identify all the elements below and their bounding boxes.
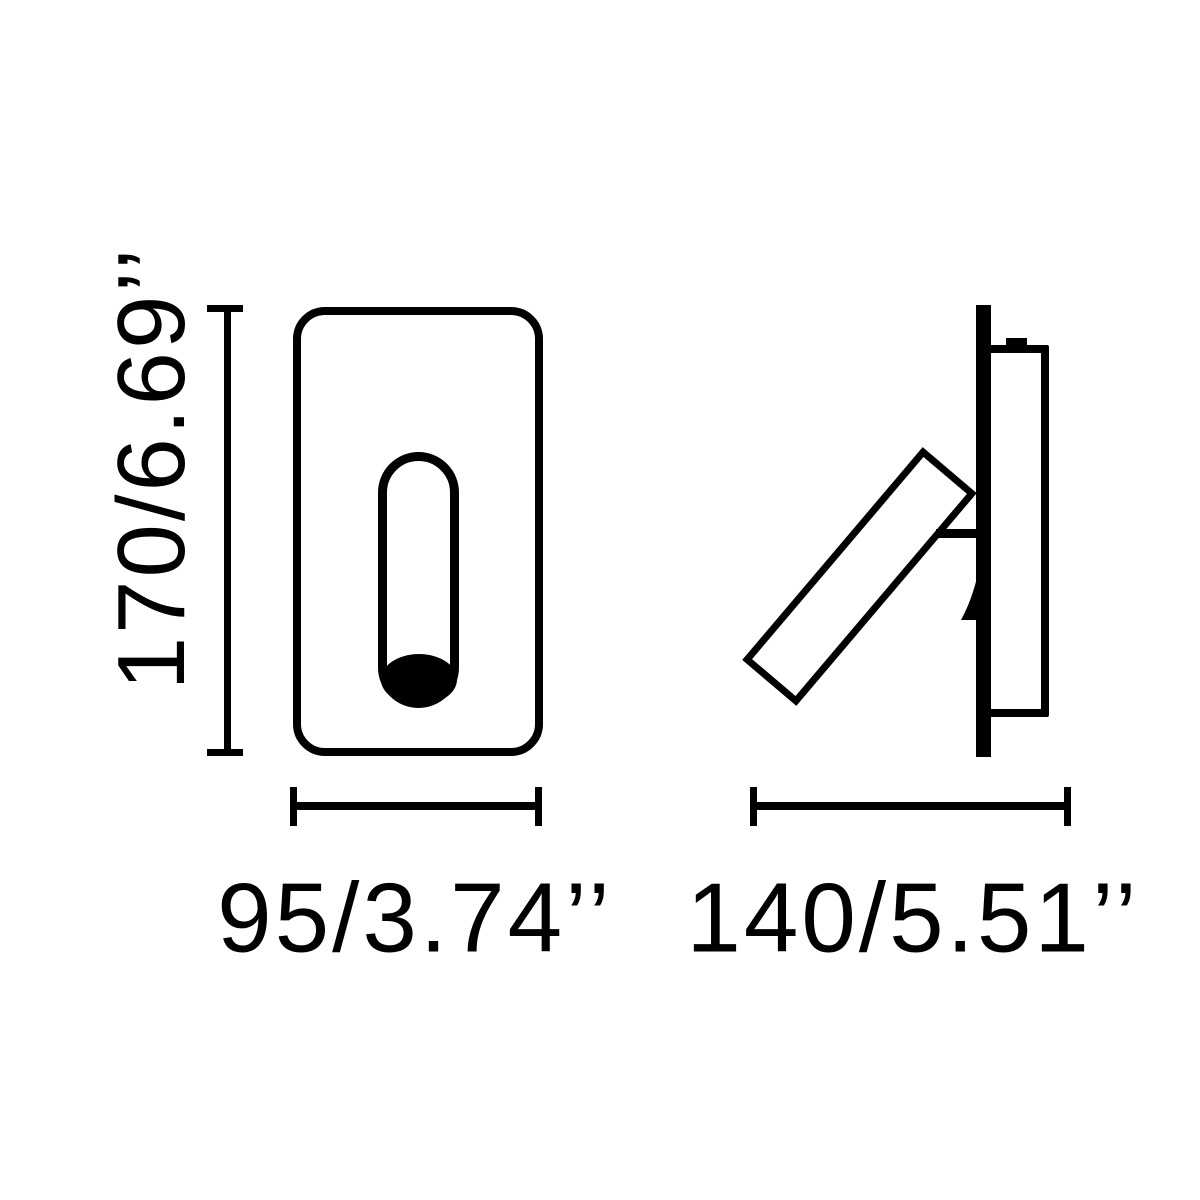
- dimension-drawing-canvas: 170/6.69’’ 95/3.74’’ 140/5.51’’: [0, 0, 1200, 1200]
- height-dimension-tick-bottom: [207, 749, 243, 756]
- front-width-dimension-label: 95/3.74’’: [217, 862, 613, 975]
- side-width-dimension-line: [753, 802, 1070, 810]
- side-view-recessed-box: [982, 345, 1049, 717]
- side-width-dimension-label: 140/5.51’’: [686, 862, 1139, 975]
- side-width-dimension-tick-right: [1064, 787, 1071, 826]
- side-width-dimension-tick-left: [750, 787, 757, 826]
- front-width-dimension-tick-right: [535, 787, 542, 826]
- side-view-box-notch: [1006, 338, 1027, 346]
- height-dimension-line: [224, 308, 231, 753]
- height-dimension-tick-top: [207, 305, 243, 312]
- side-view-lamp-tube: [742, 447, 977, 706]
- front-width-dimension-line: [293, 802, 539, 810]
- front-width-dimension-tick-left: [290, 787, 297, 826]
- side-view-wall-line: [976, 305, 991, 757]
- front-view-lamp-tube-end: [381, 654, 457, 705]
- height-dimension-label: 170/6.69’’: [97, 246, 207, 691]
